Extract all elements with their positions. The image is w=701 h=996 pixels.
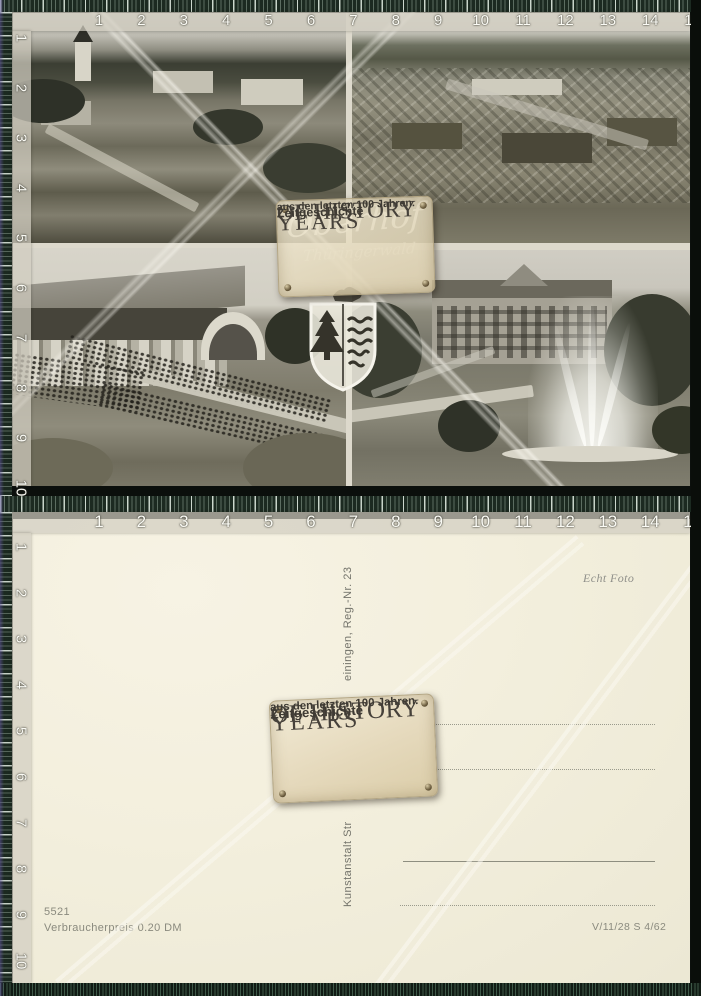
ruler-number-strip-left-back [12,533,31,983]
publisher-imprint-upper: einingen, Reg.-Nr. 23 [342,567,354,681]
oberhof-coat-of-arms [303,286,383,396]
address-line [400,905,655,906]
address-line [403,861,655,862]
echt-foto-note: Echt Foto [583,571,634,586]
shrub-shape [438,400,500,452]
screw-icon [421,700,428,707]
ruler-number-strip-top [12,12,690,31]
scanner-edge-highlight [0,0,4,996]
print-code: V/11/28 S 4/62 [592,921,666,933]
consumer-price: Verbraucherpreis 0.20 DM [44,922,182,934]
scanner-edge-right [691,0,701,996]
screw-icon [425,783,432,790]
postcard-scan: Oberhof Thüringerwald YEARS OF HISTORY Z… [0,0,701,996]
ruler-number-strip-left-front [12,31,31,486]
ruler-number-strip-middle [12,512,690,533]
ruler-tickband-middle [0,496,701,512]
watermark-plaque-front: YEARS OF HISTORY Zeitgeschichte aus den … [276,196,436,298]
order-number: 5521 [44,906,70,918]
building-shape [153,71,213,93]
screw-icon [279,790,286,797]
roof-shape [502,133,592,163]
screw-icon [420,202,427,209]
hotel-gable-shape [500,264,548,286]
church-tower-shape [75,41,91,81]
path-shape [45,124,200,213]
address-line [423,769,655,770]
tree-clump-shape [193,109,263,145]
screw-icon [422,280,429,287]
scanner-edge-bottom [0,983,701,996]
publisher-imprint-lower: Kunstanstalt Str [342,821,354,907]
screw-icon [284,284,291,291]
tree-clump-shape [263,143,346,193]
address-line [423,724,655,725]
watermark-plaque-back: YEARS OF HISTORY Zeitgeschichte aus den … [269,693,439,803]
fountain-pool-shape [502,446,678,462]
building-shape [241,79,303,105]
fountain-plume-shape [588,300,596,450]
roof-shape [392,123,462,149]
ruler-tickband-top [0,0,701,12]
